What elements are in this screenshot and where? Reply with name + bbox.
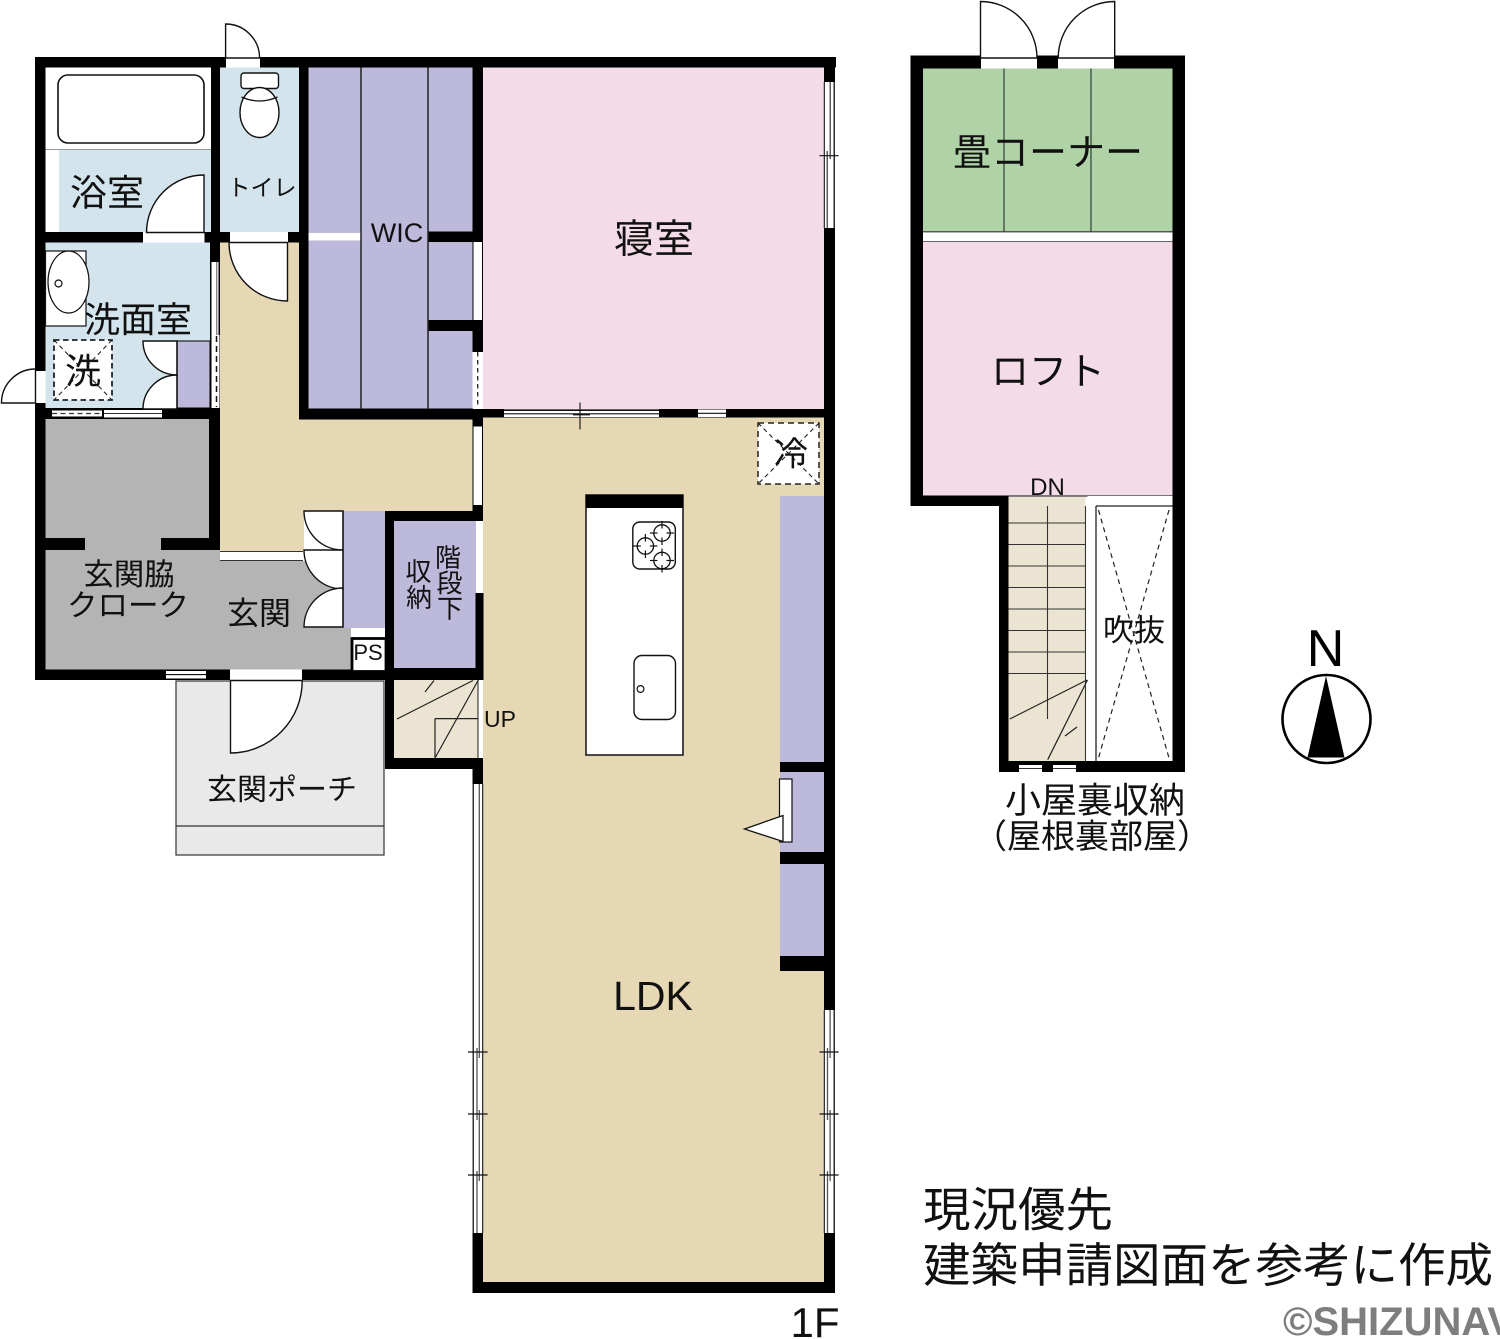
svg-text:PS: PS: [353, 640, 382, 665]
svg-text:UP: UP: [484, 706, 516, 732]
svg-text:WIC: WIC: [371, 218, 423, 248]
svg-text:©SHIZUNAVI: ©SHIZUNAVI: [1283, 1300, 1500, 1339]
svg-text:N: N: [1307, 620, 1345, 678]
svg-text:1F: 1F: [790, 1299, 839, 1339]
svg-text:LDK: LDK: [613, 973, 693, 1019]
svg-text:DN: DN: [1030, 474, 1065, 501]
